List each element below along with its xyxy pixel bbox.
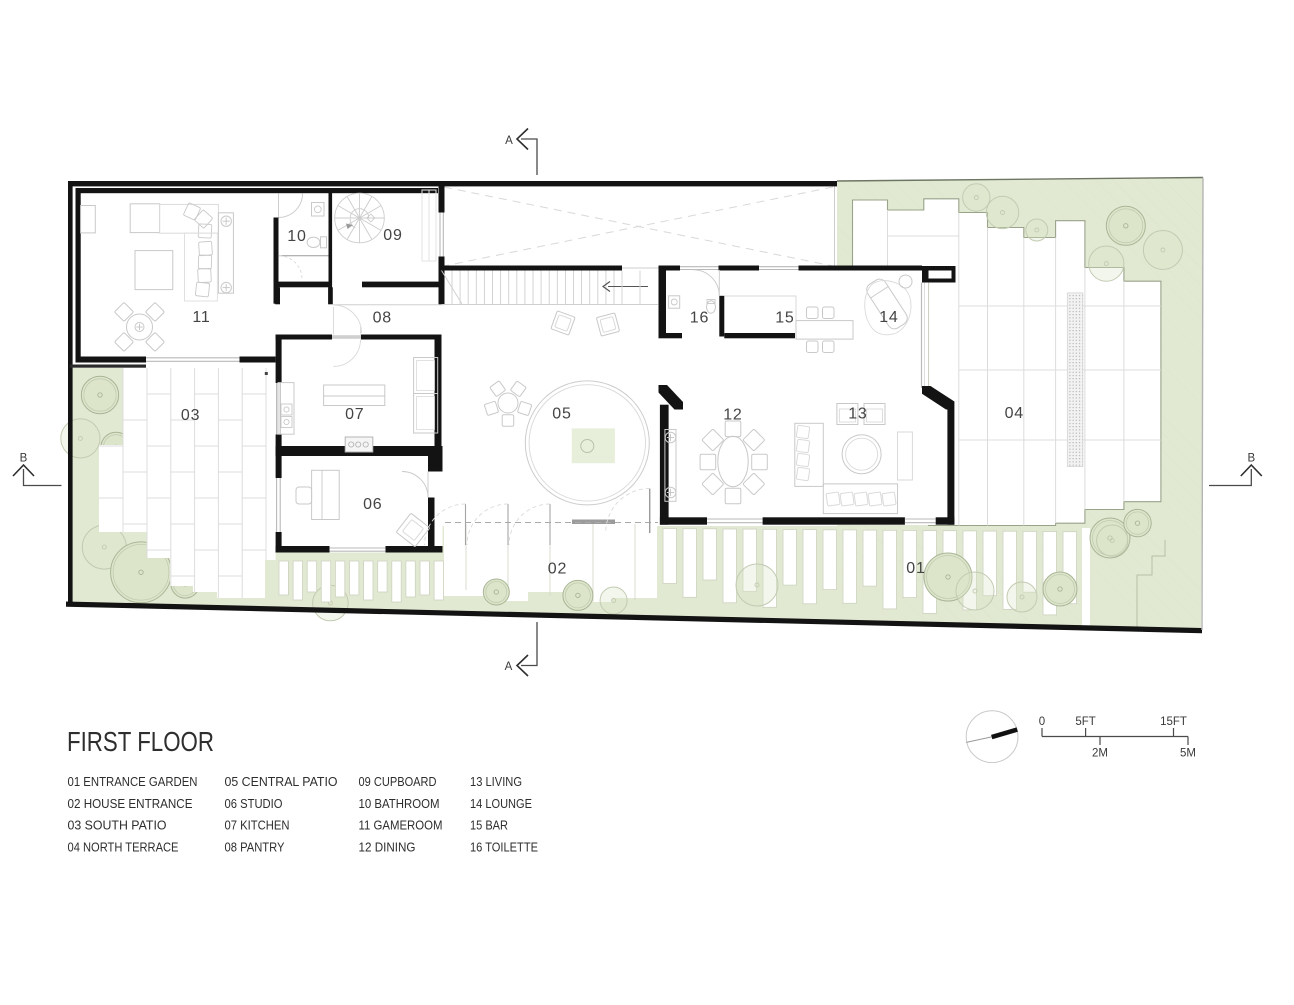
- svg-text:A: A: [505, 661, 513, 673]
- svg-text:0: 0: [1039, 716, 1045, 728]
- svg-text:11 GAMEROOM: 11 GAMEROOM: [359, 818, 443, 833]
- svg-text:10: 10: [287, 228, 306, 245]
- svg-text:08: 08: [373, 309, 392, 326]
- svg-text:02 HOUSE ENTRANCE: 02 HOUSE ENTRANCE: [68, 796, 193, 811]
- svg-text:A: A: [505, 135, 513, 147]
- svg-text:06 STUDIO: 06 STUDIO: [225, 796, 283, 811]
- svg-text:11: 11: [192, 309, 210, 326]
- svg-text:5FT: 5FT: [1075, 716, 1095, 728]
- svg-text:B: B: [20, 453, 28, 465]
- svg-text:05: 05: [552, 406, 571, 423]
- svg-text:16 TOILETTE: 16 TOILETTE: [470, 839, 538, 854]
- svg-text:14: 14: [879, 309, 898, 326]
- svg-text:2M: 2M: [1092, 748, 1108, 760]
- svg-text:09: 09: [383, 227, 402, 244]
- svg-text:03 SOUTH PATIO: 03 SOUTH PATIO: [68, 818, 167, 833]
- svg-text:13 LIVING: 13 LIVING: [470, 774, 522, 789]
- svg-text:15: 15: [775, 310, 794, 327]
- svg-text:05 CENTRAL PATIO: 05 CENTRAL PATIO: [225, 774, 338, 789]
- svg-text:07: 07: [345, 406, 364, 423]
- svg-text:08 PANTRY: 08 PANTRY: [225, 839, 285, 854]
- svg-text:04: 04: [1005, 405, 1024, 422]
- svg-text:12 DINING: 12 DINING: [359, 839, 416, 854]
- svg-text:13: 13: [848, 405, 867, 422]
- svg-text:16: 16: [690, 310, 709, 327]
- svg-text:01: 01: [906, 560, 925, 577]
- svg-text:12: 12: [723, 407, 742, 424]
- svg-text:15FT: 15FT: [1160, 716, 1187, 728]
- svg-text:02: 02: [548, 561, 567, 578]
- svg-text:FIRST FLOOR: FIRST FLOOR: [67, 726, 214, 757]
- svg-text:07 KITCHEN: 07 KITCHEN: [225, 818, 290, 833]
- svg-text:01 ENTRANCE GARDEN: 01 ENTRANCE GARDEN: [68, 774, 198, 789]
- svg-text:10 BATHROOM: 10 BATHROOM: [359, 796, 440, 811]
- svg-text:15 BAR: 15 BAR: [470, 818, 508, 833]
- svg-text:09 CUPBOARD: 09 CUPBOARD: [359, 774, 437, 789]
- svg-text:5M: 5M: [1180, 748, 1196, 760]
- svg-text:B: B: [1247, 453, 1255, 465]
- svg-text:03: 03: [181, 407, 200, 424]
- svg-text:14 LOUNGE: 14 LOUNGE: [470, 796, 532, 811]
- svg-text:06: 06: [363, 496, 382, 513]
- svg-text:04 NORTH TERRACE: 04 NORTH TERRACE: [68, 839, 179, 854]
